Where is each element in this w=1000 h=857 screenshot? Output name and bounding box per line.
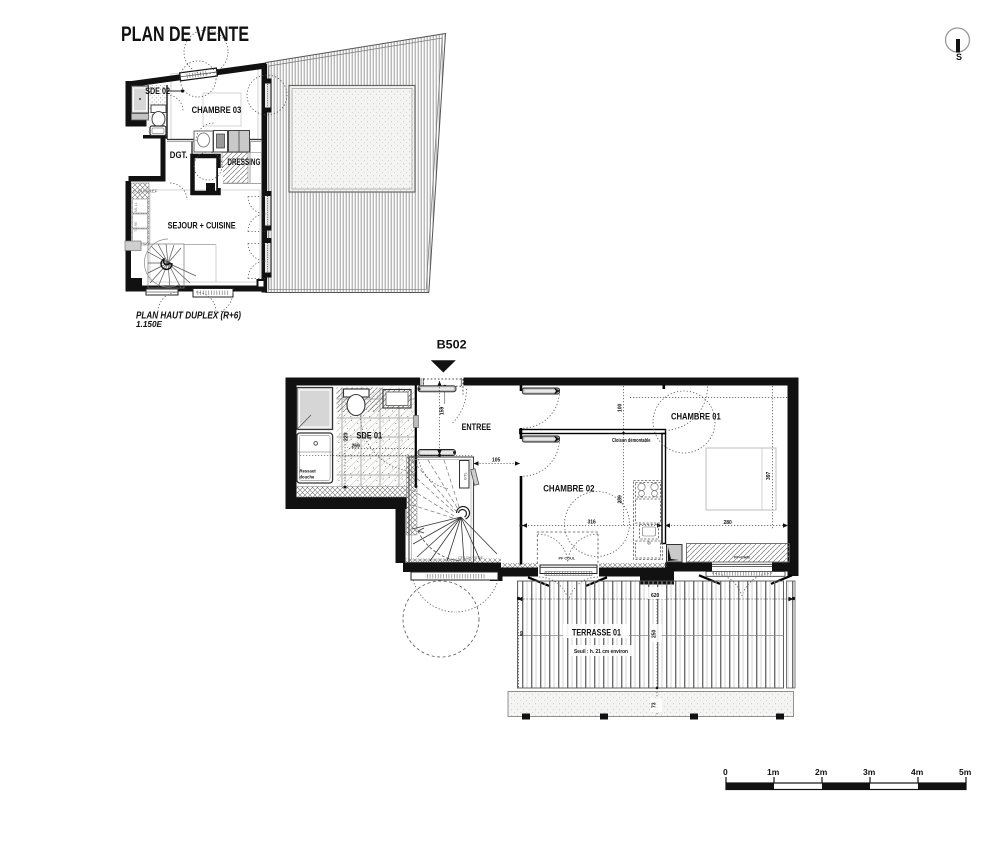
- svg-text:159: 159: [440, 406, 446, 415]
- svg-text:269: 269: [352, 444, 361, 450]
- svg-text:5m: 5m: [959, 767, 972, 777]
- svg-text:250: 250: [652, 629, 658, 638]
- svg-text:CF 1/2H VITRE: CF 1/2H VITRE: [458, 556, 484, 560]
- svg-text:SDE 02: SDE 02: [145, 86, 170, 96]
- svg-text:Cloison démontable: Cloison démontable: [612, 438, 651, 444]
- svg-text:3m: 3m: [863, 767, 876, 777]
- svg-text:CHAMBRE 03: CHAMBRE 03: [192, 105, 242, 115]
- svg-text:280: 280: [724, 520, 733, 526]
- svg-text:1m: 1m: [767, 767, 780, 777]
- svg-text:2m: 2m: [815, 767, 828, 777]
- svg-text:douche: douche: [300, 475, 316, 480]
- svg-text:289: 289: [618, 495, 624, 504]
- svg-text:4m: 4m: [911, 767, 924, 777]
- svg-text:ENTREE: ENTREE: [462, 422, 491, 433]
- svg-text:73: 73: [652, 702, 658, 708]
- svg-text:0: 0: [723, 767, 728, 777]
- svg-text:397: 397: [766, 471, 772, 480]
- svg-text:TERRASSE 01: TERRASSE 01: [572, 628, 621, 638]
- svg-text:105: 105: [492, 458, 501, 464]
- svg-text:1.150E: 1.150E: [136, 320, 163, 329]
- svg-text:Ressaut: Ressaut: [300, 469, 317, 474]
- svg-text:CHAMBRE 01: CHAMBRE 01: [671, 412, 721, 422]
- svg-text:GTL: GTL: [463, 471, 468, 480]
- svg-text:B502: B502: [437, 338, 467, 352]
- svg-text:620: 620: [651, 593, 660, 599]
- svg-text:100: 100: [618, 403, 624, 412]
- svg-text:SDE 01: SDE 01: [356, 429, 382, 440]
- svg-text:223: 223: [344, 432, 350, 441]
- svg-text:316: 316: [588, 520, 597, 526]
- svg-text:ML LL: ML LL: [134, 202, 138, 212]
- svg-text:PF+CHM: PF+CHM: [734, 556, 750, 560]
- svg-text:SEJOUR + CUISINE: SEJOUR + CUISINE: [168, 221, 236, 231]
- svg-text:DGT.: DGT.: [170, 150, 188, 160]
- svg-text:C QUISREF: C QUISREF: [133, 189, 158, 194]
- svg-text:Seuil : h. 21 cm environ: Seuil : h. 21 cm environ: [574, 649, 629, 655]
- svg-text:DRESSING: DRESSING: [227, 157, 260, 167]
- svg-text:CHAMBRE 02: CHAMBRE 02: [543, 483, 594, 494]
- svg-text:PLAN DE VENTE: PLAN DE VENTE: [121, 23, 249, 46]
- svg-text:80: 80: [519, 630, 524, 636]
- svg-text:TB RE: TB RE: [134, 221, 138, 232]
- svg-text:PF COUL: PF COUL: [559, 557, 576, 561]
- svg-text:S: S: [956, 52, 962, 62]
